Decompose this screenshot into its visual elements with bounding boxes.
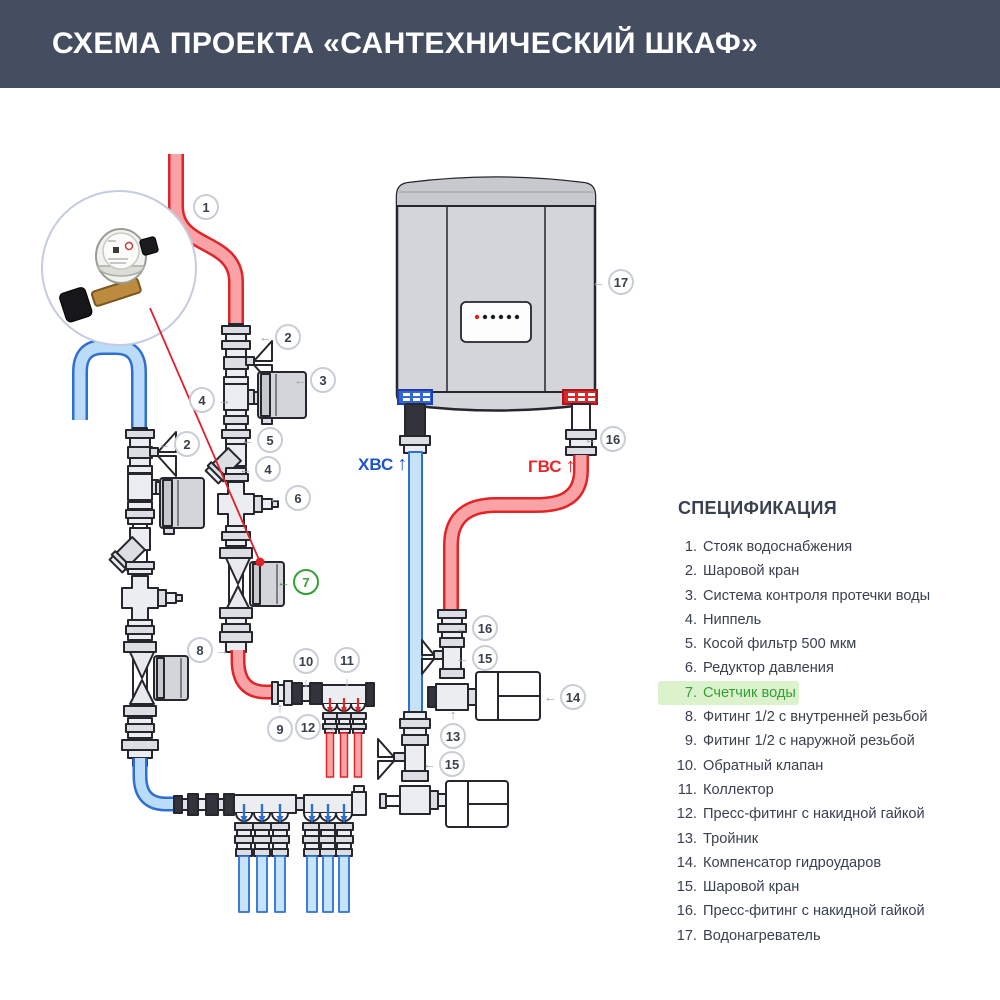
hot-distribution-pipes [327,733,362,777]
callout-5: 5← [257,427,283,453]
callout-6: 6← [285,485,311,511]
spec-item-14: 14.Компенсатор гидроударов [660,851,995,875]
spec-item-number: 3. [660,584,697,608]
callout-3: 3← [310,367,336,393]
callout-8: 8→ [187,637,213,663]
spec-item-number: 7. [660,681,697,705]
callout-14: 14← [560,684,586,710]
callout-number: 1 [202,200,209,215]
ball-valve-cold-heater [378,735,428,781]
callout-arrow-icon: ← [239,463,252,476]
spec-item-label: Компенсатор гидроударов [703,851,881,875]
callout-12: 12→ [295,714,321,740]
callout-arrow-icon: ← [269,492,282,505]
callout-number: 4 [198,393,205,408]
spec-item-3: 3.Система контроля протечки воды [660,584,995,608]
spec-item-12: 12.Пресс-фитинг с накидной гайкой [660,802,995,826]
callout-15: 15← [439,751,465,777]
callout-number: 17 [614,275,628,290]
spec-item-number: 2. [660,559,697,583]
spec-panel: СПЕЦИФИКАЦИЯ 1.Стояк водоснабжения2.Шаро… [660,498,995,948]
spec-item-number: 6. [660,656,697,680]
callout-arrow-icon: ← [456,622,469,635]
callout-arrow-icon: ↑ [277,701,284,714]
spec-item-number: 5. [660,632,697,656]
leak-control-device-cold [156,478,204,534]
spec-item-2: 2.Шаровой кран [660,559,995,583]
callout-arrow-icon: ← [158,438,171,451]
cold-outlet-fittings [235,823,353,856]
flow-label-cold: ХВС↑ [358,455,407,475]
callout-arrow-icon: → [216,644,229,657]
spec-item-number: 1. [660,535,697,559]
flow-label-hot: ГВС↑ [528,457,576,477]
hot-heater-pipe [451,455,581,612]
nipple-upper [224,410,248,430]
cold-label-text: ХВС [358,455,393,475]
callout-number: 6 [294,491,301,506]
spec-item-15: 15.Шаровой кран [660,875,995,899]
callout-15: 15← [472,645,498,671]
callout-arrow-icon: ← [592,276,605,289]
callout-number: 15 [445,757,459,772]
spec-item-label: Коллектор [703,778,774,802]
spec-item-label: Шаровой кран [703,875,799,899]
cold-riser-pipe [80,347,139,432]
spec-item-11: 11.Коллектор [660,778,995,802]
spec-item-label: Фитинг 1/2 с наружной резьбой [703,729,915,753]
callout-number: 16 [478,621,492,636]
spec-item-number: 9. [660,729,697,753]
up-arrow-icon: ↑ [566,457,576,475]
callout-7: 7← [293,569,319,595]
spec-item-label: Пресс-фитинг с накидной гайкой [703,899,925,923]
callout-number: 2 [284,330,291,345]
hot-heater-line [566,404,596,455]
callout-arrow-icon: ← [456,652,469,665]
callout-number: 5 [266,433,273,448]
callout-arrow-icon: ← [544,691,557,704]
cold-distribution-pipes [239,856,349,912]
spec-item-number: 14. [660,851,697,875]
callout-arrow-icon: ↑ [450,708,457,721]
cold-manifold-row [174,786,366,912]
callout-2: 2← [174,431,200,457]
callout-arrow-icon: → [218,394,231,407]
spec-item-10: 10.Обратный клапан [660,754,995,778]
spec-item-6: 6.Редуктор давления [660,656,995,680]
spec-item-number: 10. [660,754,697,778]
cold-collector-2 [304,786,366,821]
callout-number: 2 [183,437,190,452]
callout-16: 16← [472,615,498,641]
heater-control-panel [461,302,531,342]
callout-arrow-icon: ← [423,758,436,771]
callout-10: 10↓ [293,648,319,674]
spec-item-label: Счетчик воды [703,681,796,705]
spec-item-16: 16.Пресс-фитинг с накидной гайкой [660,899,995,923]
spec-item-label: Тройник [703,827,758,851]
spec-item-4: 4.Ниппель [660,608,995,632]
callout-arrow-icon: ← [259,331,272,344]
callout-number: 15 [478,651,492,666]
spec-item-label: Фитинг 1/2 с внутренней резьбой [703,705,928,729]
spec-item-number: 4. [660,608,697,632]
callout-4: 4← [255,456,281,482]
spec-item-label: Пресс-фитинг с накидной гайкой [703,802,925,826]
spec-item-1: 1.Стояк водоснабжения [660,535,995,559]
spec-item-number: 16. [660,899,697,923]
callout-number: 4 [264,462,271,477]
pressure-reducer-cold [122,576,182,620]
spec-item-13: 13.Тройник [660,827,995,851]
callout-number: 7 [302,575,309,590]
spec-heading: СПЕЦИФИКАЦИЯ [678,498,995,519]
spec-item-label: Ниппель [703,608,761,632]
callout-arrow-icon: ← [277,576,290,589]
spec-item-number: 15. [660,875,697,899]
callout-number: 12 [301,720,315,735]
callout-number: 16 [606,432,620,447]
cold-supply-column [108,428,204,766]
callout-arrow-icon: ↓ [344,675,351,688]
cold-manifold-fittings [174,794,234,815]
spec-item-7: 7.Счетчик воды [660,681,995,705]
spec-item-number: 13. [660,827,697,851]
heater-cold-inlet [398,390,432,404]
callout-arrow-icon: ← [584,433,597,446]
tee-cold [380,786,446,814]
callout-number: 8 [196,643,203,658]
callout-arrow-icon: ← [294,374,307,387]
spec-item-label: Обратный клапан [703,754,823,778]
callout-number: 14 [566,690,580,705]
water-heater [397,178,597,411]
spec-item-number: 8. [660,705,697,729]
callout-number: 3 [319,373,326,388]
callout-1: 1 [193,194,219,220]
callout-16: 16← [600,426,626,452]
callout-9: 9↑ [267,716,293,742]
spec-item-number: 17. [660,924,697,948]
callout-arrow-icon: ← [241,434,254,447]
spec-item-9: 9.Фитинг 1/2 с наружной резьбой [660,729,995,753]
callout-4: 4→ [189,387,215,413]
spec-item-label: Редуктор давления [703,656,834,680]
spec-item-17: 17.Водонагреватель [660,924,995,948]
callout-number: 9 [276,722,283,737]
water-hammer-arrestor-hot [476,672,540,720]
up-arrow-icon: ↑ [397,455,407,473]
callout-number: 11 [340,653,354,668]
hot-label-text: ГВС [528,457,562,477]
callout-number: 13 [446,729,460,744]
spec-item-label: Система контроля протечки воды [703,584,930,608]
callout-17: 17← [608,269,634,295]
spec-item-number: 12. [660,802,697,826]
water-hammer-arrestor-cold [446,781,508,827]
callout-11: 11↓ [334,647,360,673]
hot-elbow-pipe [238,650,272,692]
callout-number: 10 [299,654,313,669]
spec-item-label: Стояк водоснабжения [703,535,852,559]
callout-2: 2← [275,324,301,350]
spec-item-label: Водонагреватель [703,924,821,948]
spec-item-8: 8.Фитинг 1/2 с внутренней резьбой [660,705,995,729]
spec-item-5: 5.Косой фильтр 500 мкм [660,632,995,656]
page: СХЕМА ПРОЕКТА «САНТЕХНИЧЕСКИЙ ШКАФ» [0,0,1000,1000]
spec-item-number: 11. [660,778,697,802]
spec-item-label: Шаровой кран [703,559,799,583]
cold-elbow-pipe [140,758,176,804]
spec-item-label: Косой фильтр 500 мкм [703,632,856,656]
heater-hot-outlet [563,390,597,404]
callout-13: 13↑ [440,723,466,749]
callout-arrow-icon: → [324,721,337,734]
spec-list: 1.Стояк водоснабжения2.Шаровой кран3.Сис… [660,535,995,948]
callout-arrow-icon: ↓ [303,676,310,689]
